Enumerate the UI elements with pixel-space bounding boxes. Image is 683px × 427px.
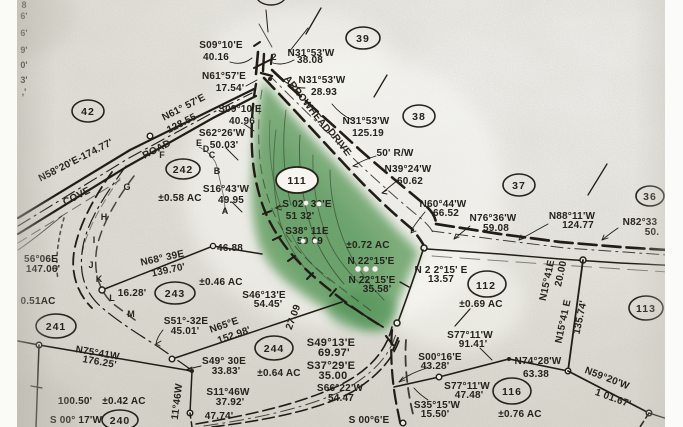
svg-text:49.95: 49.95	[218, 195, 244, 206]
svg-text:35.58': 35.58'	[363, 284, 392, 295]
svg-text:111: 111	[287, 175, 306, 187]
svg-text:91.41': 91.41'	[459, 339, 488, 350]
svg-text:N61°57'E: N61°57'E	[202, 71, 246, 82]
svg-text:124.77: 124.77	[562, 220, 594, 231]
svg-text:244: 244	[264, 343, 285, 355]
svg-text:45.01': 45.01'	[171, 326, 200, 337]
svg-text:42: 42	[81, 106, 95, 118]
svg-text:69.97': 69.97'	[318, 347, 350, 359]
svg-text:±0.76 AC: ±0.76 AC	[498, 409, 541, 420]
svg-text:F: F	[159, 150, 165, 160]
svg-text:13.57: 13.57	[428, 274, 454, 285]
svg-text:S 00°6'E: S 00°6'E	[349, 415, 390, 426]
svg-text:242: 242	[173, 164, 194, 176]
svg-text:±0.46 AC: ±0.46 AC	[199, 277, 242, 288]
svg-text:63.38: 63.38	[523, 369, 549, 380]
svg-text:I: I	[93, 235, 96, 245]
svg-text:37.92': 37.92'	[216, 397, 245, 408]
svg-text:40.96: 40.96	[229, 116, 255, 127]
svg-text:C: C	[209, 150, 216, 160]
svg-text:±0.72 AC: ±0.72 AC	[346, 240, 389, 251]
svg-text:S09°10'E: S09°10'E	[218, 104, 262, 115]
svg-text:N39°24'W: N39°24'W	[385, 164, 432, 175]
svg-text:17.54': 17.54'	[216, 83, 245, 94]
svg-text:L: L	[109, 293, 115, 303]
svg-text:J: J	[88, 260, 93, 270]
svg-text:33.83': 33.83'	[212, 366, 241, 377]
svg-text:37: 37	[512, 180, 526, 192]
svg-text:15.50': 15.50'	[421, 409, 450, 420]
svg-text:46.88: 46.88	[217, 243, 243, 254]
svg-text:54.47: 54.47	[328, 393, 354, 404]
svg-text:38.08: 38.08	[297, 55, 323, 66]
svg-text:60.62: 60.62	[397, 176, 423, 187]
svg-text:35.00: 35.00	[318, 370, 347, 382]
svg-text:S09°10'E: S09°10'E	[199, 40, 243, 51]
svg-text:47.74': 47.74'	[205, 411, 234, 422]
svg-text:S62°26'W: S62°26'W	[199, 128, 246, 139]
svg-text:112: 112	[476, 280, 496, 292]
svg-text:50' R/W: 50' R/W	[376, 148, 413, 159]
svg-text:M: M	[127, 309, 135, 319]
svg-text:S16°43'W: S16°43'W	[203, 184, 250, 195]
svg-text:51 32': 51 32'	[286, 211, 315, 222]
svg-text:±0.64 AC: ±0.64 AC	[257, 368, 300, 379]
svg-text:B: B	[214, 166, 221, 176]
svg-text:N31°53'W: N31°53'W	[299, 75, 346, 86]
svg-text:16.28': 16.28'	[118, 288, 147, 299]
svg-text:±0.58 AC: ±0.58 AC	[158, 193, 201, 204]
svg-text:K: K	[96, 274, 103, 284]
svg-text:243: 243	[165, 288, 186, 300]
svg-text:N 22°15'E: N 22°15'E	[347, 256, 394, 267]
svg-text:54.45': 54.45'	[254, 299, 283, 310]
svg-text:38: 38	[412, 111, 426, 123]
svg-text:H: H	[101, 212, 108, 222]
svg-text:28.93: 28.93	[311, 87, 337, 98]
svg-text:G: G	[123, 182, 130, 192]
svg-text:2: 2	[271, 52, 276, 62]
svg-text:±0.42 AC: ±0.42 AC	[102, 396, 145, 407]
svg-text:E: E	[196, 138, 202, 148]
svg-text:125.19: 125.19	[352, 128, 384, 139]
svg-text:A: A	[222, 206, 229, 216]
svg-text:40.16: 40.16	[203, 52, 229, 63]
svg-text:240: 240	[110, 415, 131, 427]
svg-text:±0.69 AC: ±0.69 AC	[459, 299, 502, 310]
svg-text:66.52: 66.52	[433, 208, 459, 219]
svg-text:N74°28'W: N74°28'W	[515, 356, 562, 367]
svg-text:N31°53'W: N31°53'W	[343, 116, 390, 127]
svg-text:59.08: 59.08	[483, 223, 509, 234]
svg-text:116: 116	[502, 386, 522, 398]
svg-text:43.28': 43.28'	[421, 361, 450, 372]
svg-text:39: 39	[356, 33, 370, 45]
